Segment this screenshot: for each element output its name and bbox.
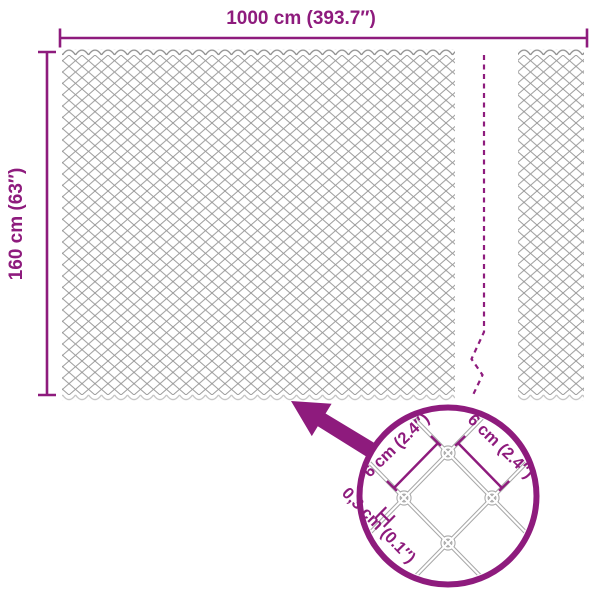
product-diagram: 1000 cm (393.7″) 160 cm (63″) 6 cm (2.4″… <box>0 0 600 600</box>
mesh-texture-main <box>62 55 455 395</box>
mesh-panel-cut <box>518 49 584 400</box>
mesh-bottom-edge <box>62 395 455 401</box>
detail-magnifier-circle <box>360 408 537 585</box>
width-dimension-label: 1000 cm (393.7″) <box>226 8 376 29</box>
mesh-top-edge-cut <box>518 49 584 55</box>
mesh-bottom-edge-cut <box>518 395 584 401</box>
height-dimension-label: 160 cm (63″) <box>6 168 27 281</box>
mesh-top-edge <box>62 49 455 55</box>
diagram-canvas: 1000 cm (393.7″) 160 cm (63″) 6 cm (2.4″… <box>0 0 600 600</box>
mesh-texture-cut <box>518 55 584 395</box>
mesh-panel-main <box>62 49 455 400</box>
